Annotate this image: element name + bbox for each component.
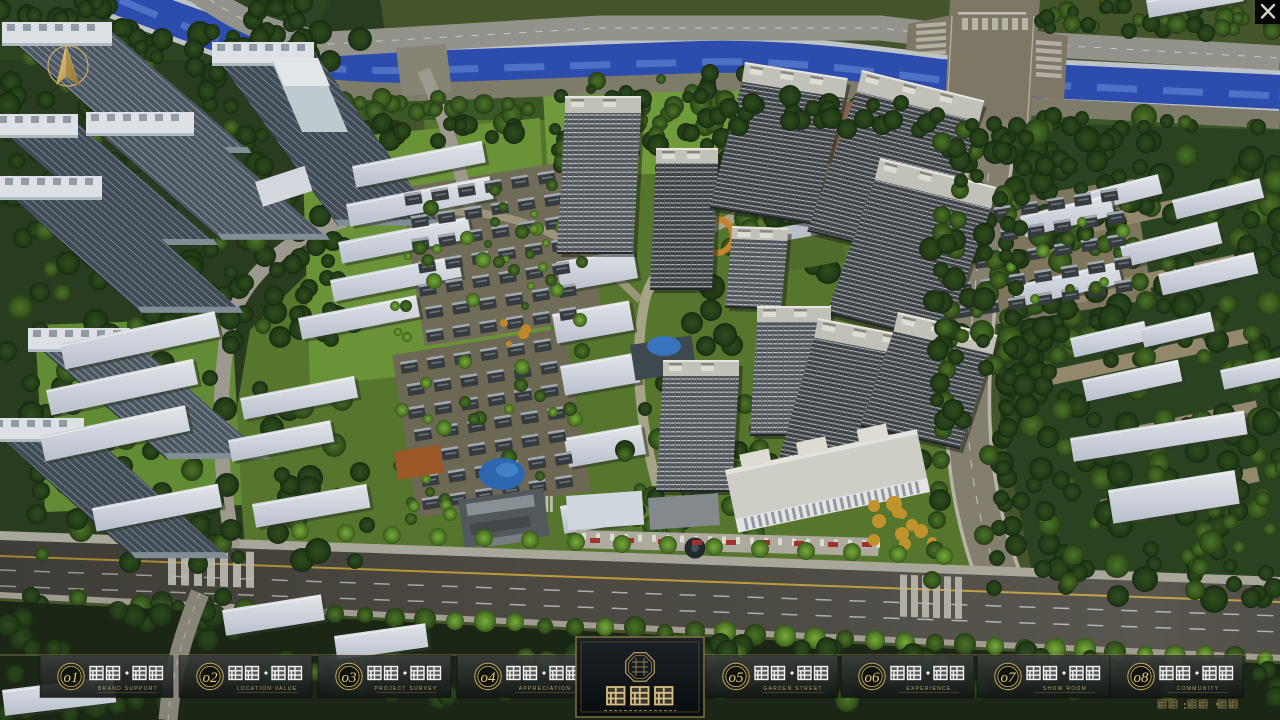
svg-text:COMMUNITY: COMMUNITY — [1177, 686, 1220, 692]
svg-text:o3: o3 — [342, 670, 357, 686]
svg-text:EXPERIENCE: EXPERIENCE — [906, 686, 951, 692]
svg-text:o8: o8 — [1134, 670, 1150, 686]
svg-text:SHOW ROOM: SHOW ROOM — [1043, 686, 1087, 692]
svg-text:LOCATION VALUE: LOCATION VALUE — [237, 686, 298, 692]
svg-text:o5: o5 — [729, 670, 745, 686]
svg-text:APPRECIATION: APPRECIATION — [519, 686, 571, 692]
svg-text:o7: o7 — [1001, 670, 1018, 686]
svg-text:o4: o4 — [481, 670, 497, 686]
svg-text:o2: o2 — [203, 670, 219, 686]
svg-text:PROJECT SURVEY: PROJECT SURVEY — [374, 686, 437, 692]
svg-text:GARDEN STREET: GARDEN STREET — [763, 686, 822, 692]
svg-text:BRAND SUPPORT: BRAND SUPPORT — [98, 686, 158, 692]
svg-text:o6: o6 — [865, 670, 881, 686]
svg-text:o1: o1 — [64, 670, 79, 686]
